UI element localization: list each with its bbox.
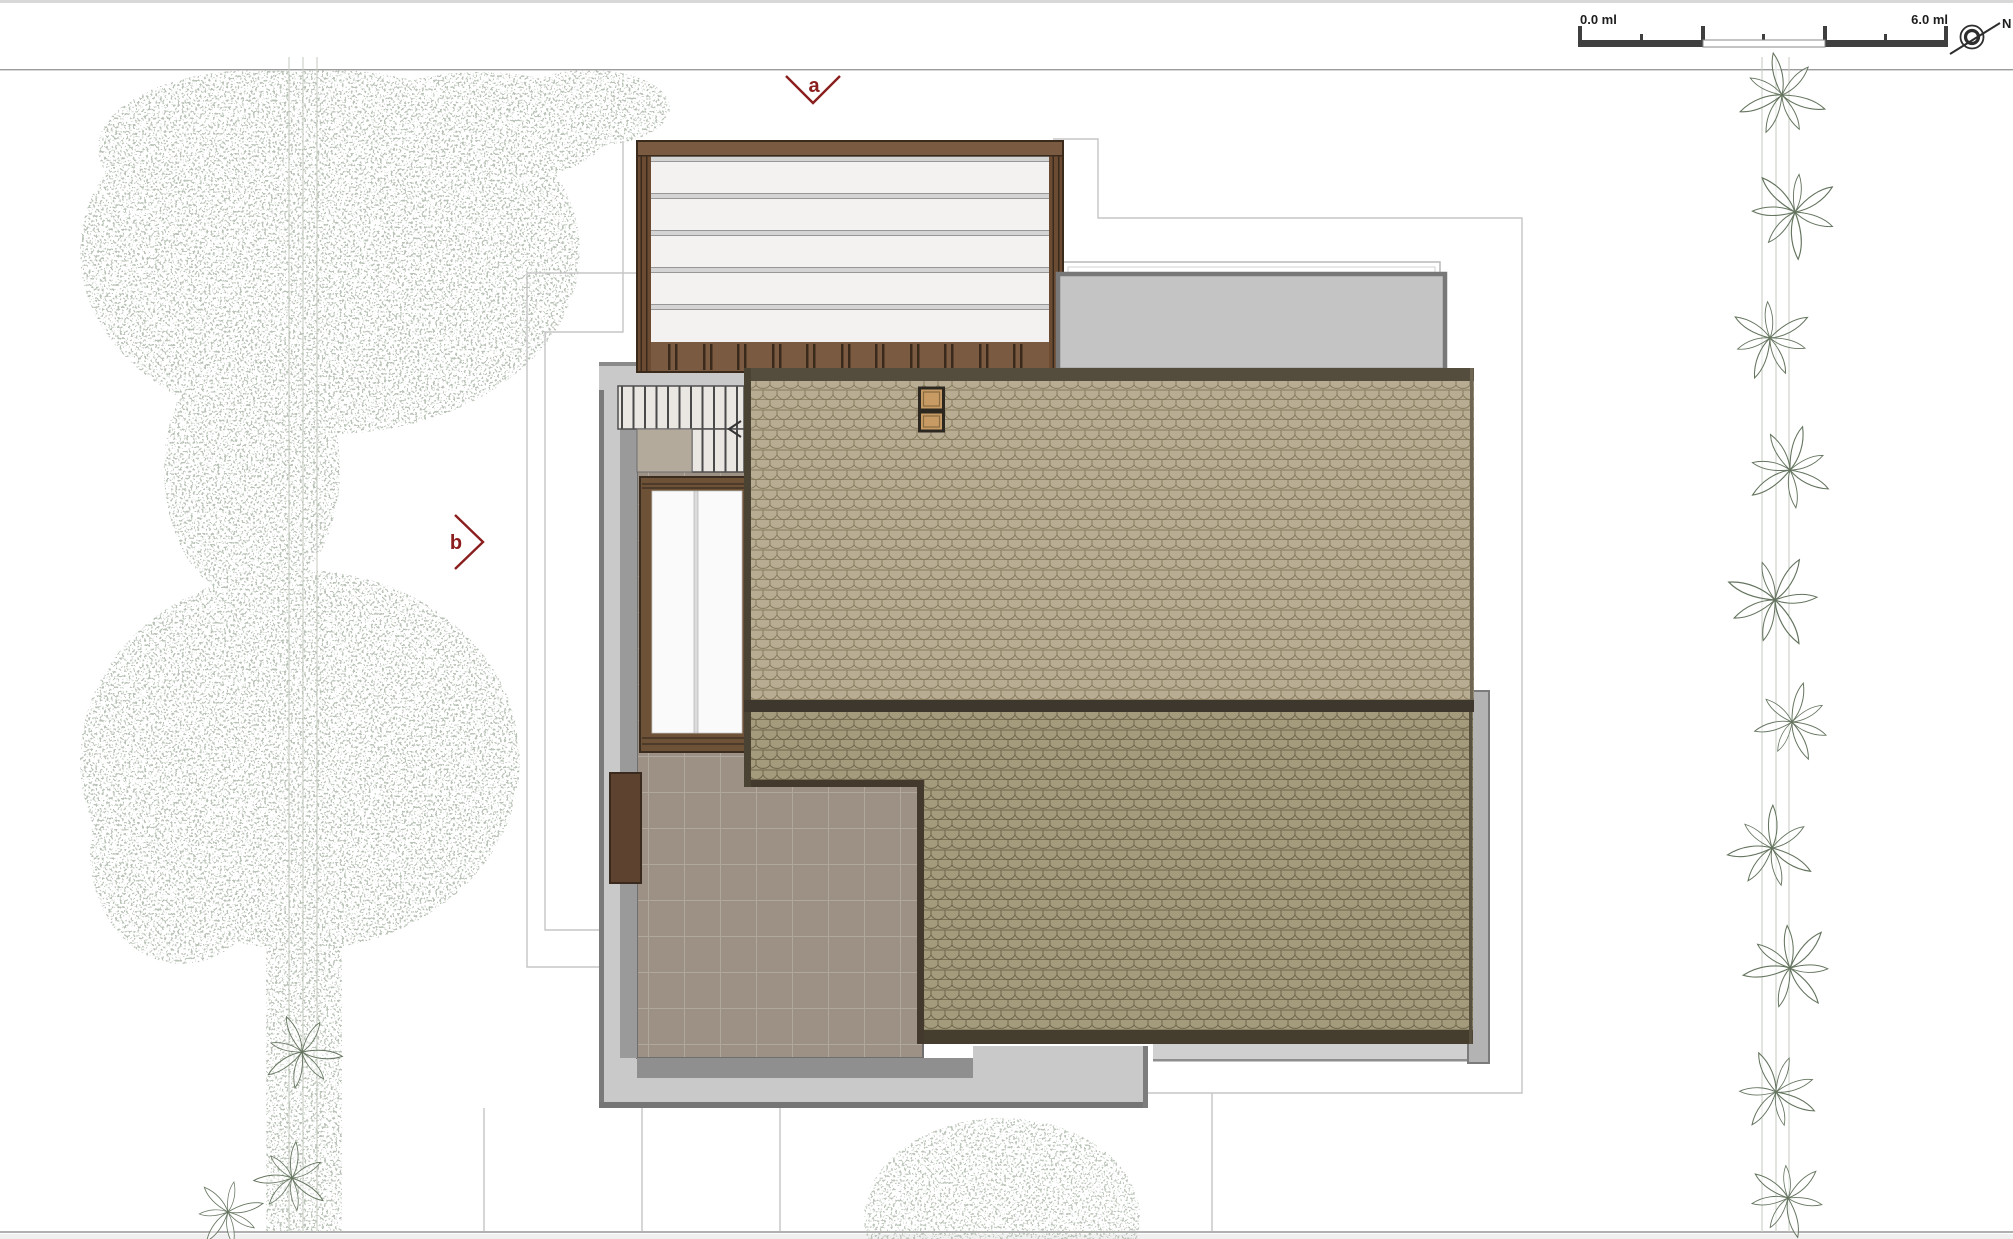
pergola-top-beam <box>637 141 1063 156</box>
roof-notch-edge-right <box>917 780 924 1044</box>
roof-plan-drawing: 0.0 ml 6.0 ml N a b <box>0 0 2013 1239</box>
scale-start-label: 0.0 ml <box>1580 12 1617 27</box>
stairs <box>618 386 744 472</box>
apron-bottom-edge <box>599 1102 1148 1108</box>
section-a-label: a <box>808 75 820 97</box>
roof-hatch-boxes <box>920 388 944 431</box>
vegetation-right-band <box>1713 46 1848 1239</box>
section-marker-b: b <box>450 515 483 569</box>
top-window-edge <box>0 0 2013 3</box>
scale-bar: 0.0 ml 6.0 ml <box>1578 12 1948 47</box>
section-marker-a: a <box>786 75 840 103</box>
scale-bar-open-segment <box>1703 40 1825 47</box>
tree-canopy-bottom <box>864 1118 1140 1239</box>
header-rule <box>0 69 2013 70</box>
stair-landing <box>637 429 692 472</box>
flat-roof <box>1058 274 1445 370</box>
pergola-panels <box>651 156 1049 342</box>
compass-icon: N <box>1950 16 2011 54</box>
stair-flight-lower <box>692 429 744 472</box>
wall-chimney-block <box>610 773 641 883</box>
roof-bottom-edge <box>923 1030 1473 1044</box>
site-plan-canvas: 0.0 ml 6.0 ml N a b <box>0 0 2013 1239</box>
roof-top-edge <box>744 368 1474 381</box>
section-b-label: b <box>450 532 462 554</box>
skylight-mullion <box>694 491 698 733</box>
stair-flight-upper <box>618 386 744 429</box>
pergola <box>637 141 1063 372</box>
skylight <box>640 477 748 752</box>
vine-leaves <box>1713 46 1848 1239</box>
roof-notch-edge-top <box>744 780 924 787</box>
parapet-inner-edge <box>620 386 637 1058</box>
scale-end-label: 6.0 ml <box>1911 12 1948 27</box>
north-label: N <box>2002 16 2011 31</box>
vegetation-left-band <box>80 57 670 1239</box>
upper-tiled-roof <box>744 368 1474 712</box>
roof-ridge <box>744 700 1474 712</box>
